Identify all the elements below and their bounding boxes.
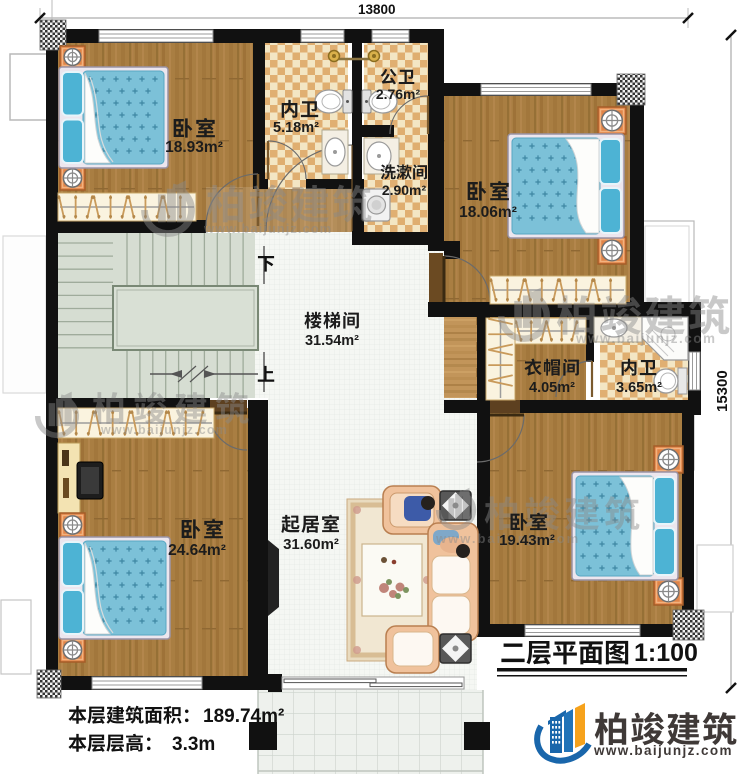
svg-text:24.64m²: 24.64m² <box>168 542 226 559</box>
svg-text:19.43m²: 19.43m² <box>499 532 555 549</box>
svg-text:189.74m²: 189.74m² <box>203 706 284 727</box>
svg-text:31.60m²: 31.60m² <box>283 536 339 553</box>
svg-text:3.65m²: 3.65m² <box>616 380 662 396</box>
svg-text:www.baijunjz.com: www.baijunjz.com <box>203 221 332 236</box>
svg-text:18.93m²: 18.93m² <box>165 139 223 156</box>
svg-text:13800: 13800 <box>358 2 396 17</box>
svg-text:4.05m²: 4.05m² <box>529 380 575 396</box>
svg-text:1:100: 1:100 <box>634 639 698 667</box>
svg-text:15300: 15300 <box>714 370 731 412</box>
svg-text:3.3m: 3.3m <box>172 734 215 755</box>
svg-text:2.76m²: 2.76m² <box>376 86 421 102</box>
svg-text:18.06m²: 18.06m² <box>459 204 517 221</box>
svg-text:31.54m²: 31.54m² <box>305 333 359 349</box>
svg-text:5.18m²: 5.18m² <box>273 120 319 136</box>
svg-text:www.baijunjz.com: www.baijunjz.com <box>575 331 717 346</box>
svg-text:www.baijunjz.com: www.baijunjz.com <box>100 423 228 437</box>
svg-text:2.90m²: 2.90m² <box>382 182 427 198</box>
svg-text:www.baijunjz.com: www.baijunjz.com <box>593 743 733 758</box>
